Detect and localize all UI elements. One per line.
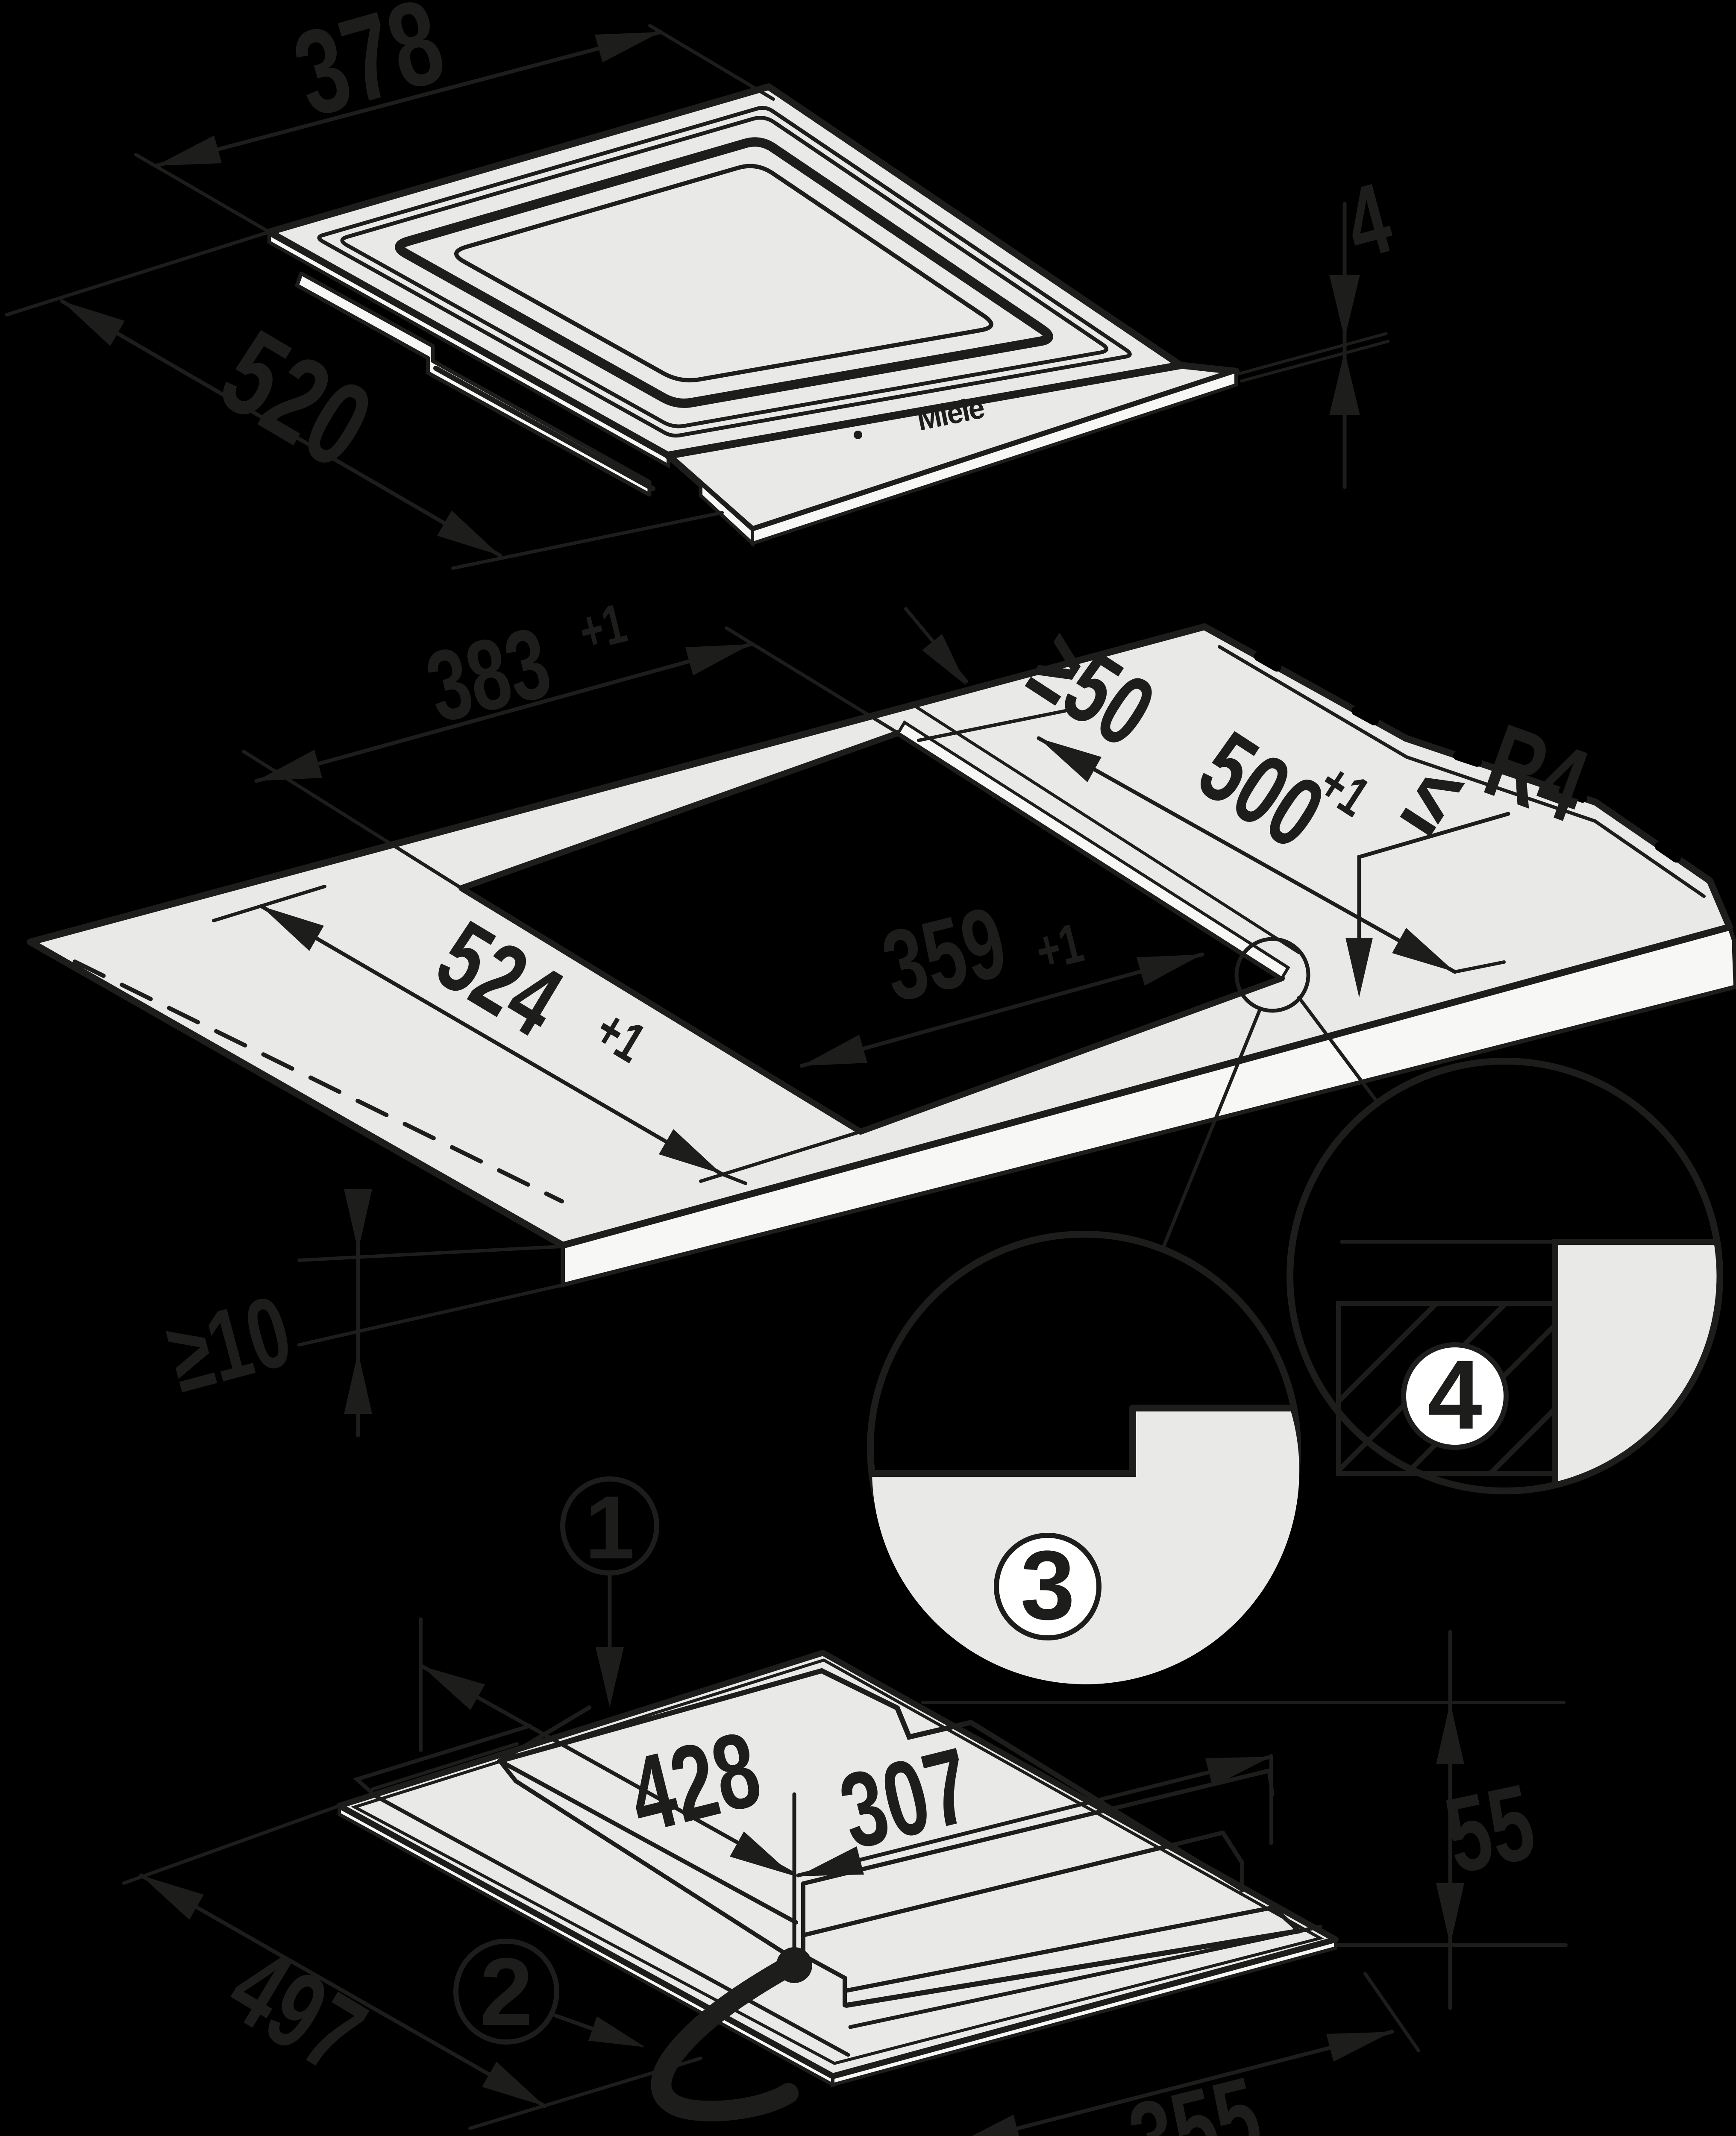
svg-text:4: 4 (1428, 1340, 1482, 1449)
svg-text:3: 3 (1020, 1530, 1075, 1640)
svg-text:1: 1 (585, 1477, 635, 1578)
svg-text:2: 2 (479, 1938, 533, 2045)
